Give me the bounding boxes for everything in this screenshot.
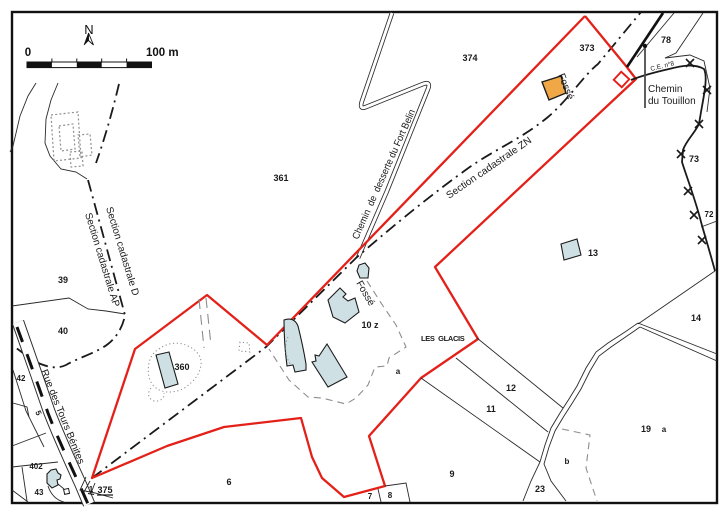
svg-text:73: 73 (689, 154, 699, 164)
svg-text:a: a (662, 425, 667, 434)
svg-text:7: 7 (368, 492, 373, 501)
svg-text:a: a (396, 367, 401, 376)
svg-text:373: 373 (579, 43, 594, 53)
svg-text:100 m: 100 m (146, 47, 179, 59)
svg-text:360: 360 (174, 362, 189, 372)
svg-text:0: 0 (25, 47, 31, 59)
svg-text:23: 23 (535, 484, 545, 494)
svg-text:19: 19 (641, 424, 651, 434)
svg-text:72: 72 (705, 210, 714, 219)
svg-text:1: 1 (89, 485, 94, 494)
svg-text:374: 374 (462, 53, 477, 63)
svg-text:42: 42 (17, 374, 26, 383)
svg-text:40: 40 (58, 326, 68, 336)
svg-text:43: 43 (35, 488, 44, 497)
svg-text:13: 13 (588, 248, 598, 258)
svg-text:LES GLACIS: LES GLACIS (421, 334, 465, 343)
svg-text:du Touillon: du Touillon (648, 96, 696, 107)
svg-text:8: 8 (388, 491, 393, 500)
svg-text:78: 78 (661, 35, 671, 45)
svg-text:402: 402 (29, 462, 43, 471)
svg-text:375: 375 (97, 485, 112, 495)
svg-text:12: 12 (506, 383, 516, 393)
svg-text:10 z: 10 z (361, 320, 379, 330)
svg-text:6: 6 (226, 477, 231, 487)
svg-text:b: b (565, 457, 570, 466)
svg-text:Chemin: Chemin (648, 84, 682, 95)
svg-text:14: 14 (691, 313, 701, 323)
svg-text:361: 361 (273, 173, 288, 183)
svg-text:39: 39 (58, 275, 68, 285)
svg-text:11: 11 (486, 404, 496, 414)
svg-text:9: 9 (449, 469, 454, 479)
